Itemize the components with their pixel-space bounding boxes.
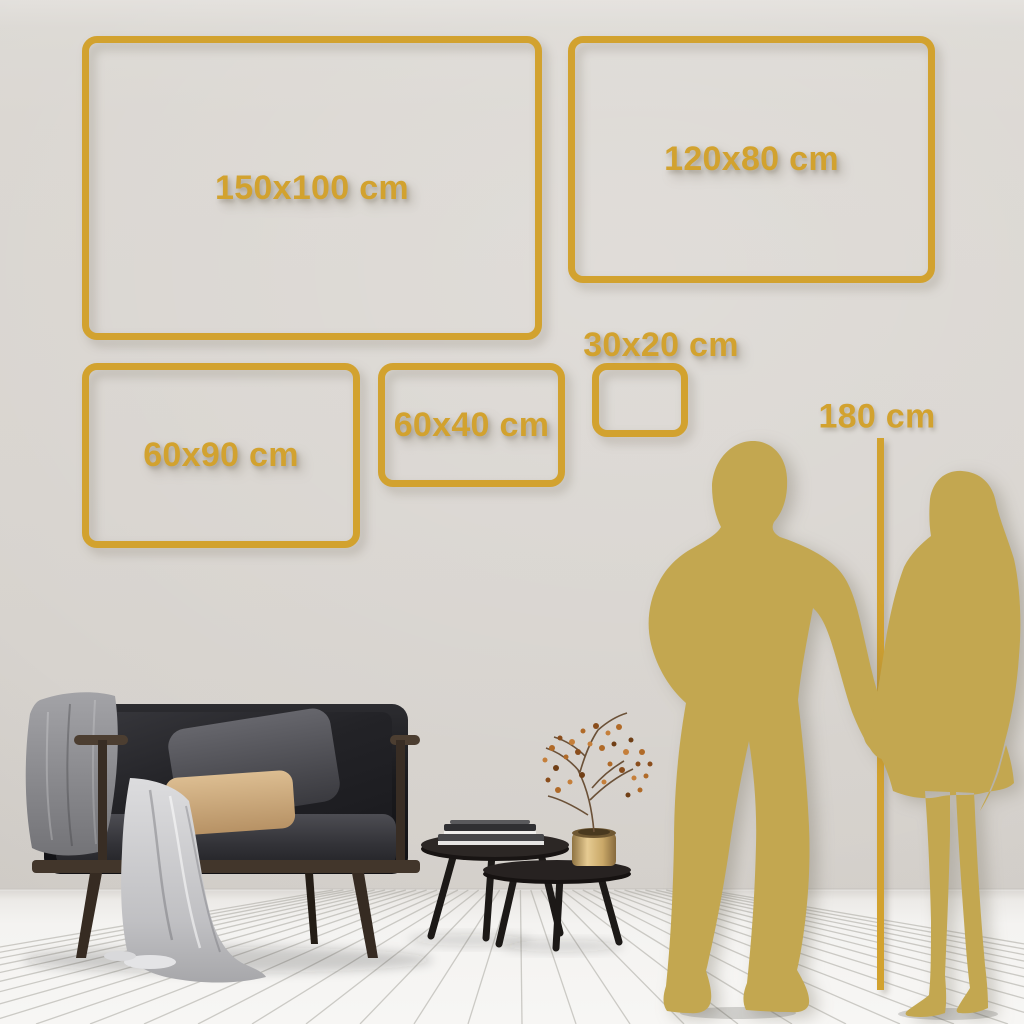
- height-marker-label: 180 cm: [818, 398, 935, 437]
- man-silhouette: [649, 441, 898, 1013]
- couple-silhouette: [0, 0, 1024, 1024]
- woman-silhouette: [864, 471, 1021, 1017]
- size-guide-scene: 150x100 cm 120x80 cm 60x90 cm 60x40 cm 3…: [0, 0, 1024, 1024]
